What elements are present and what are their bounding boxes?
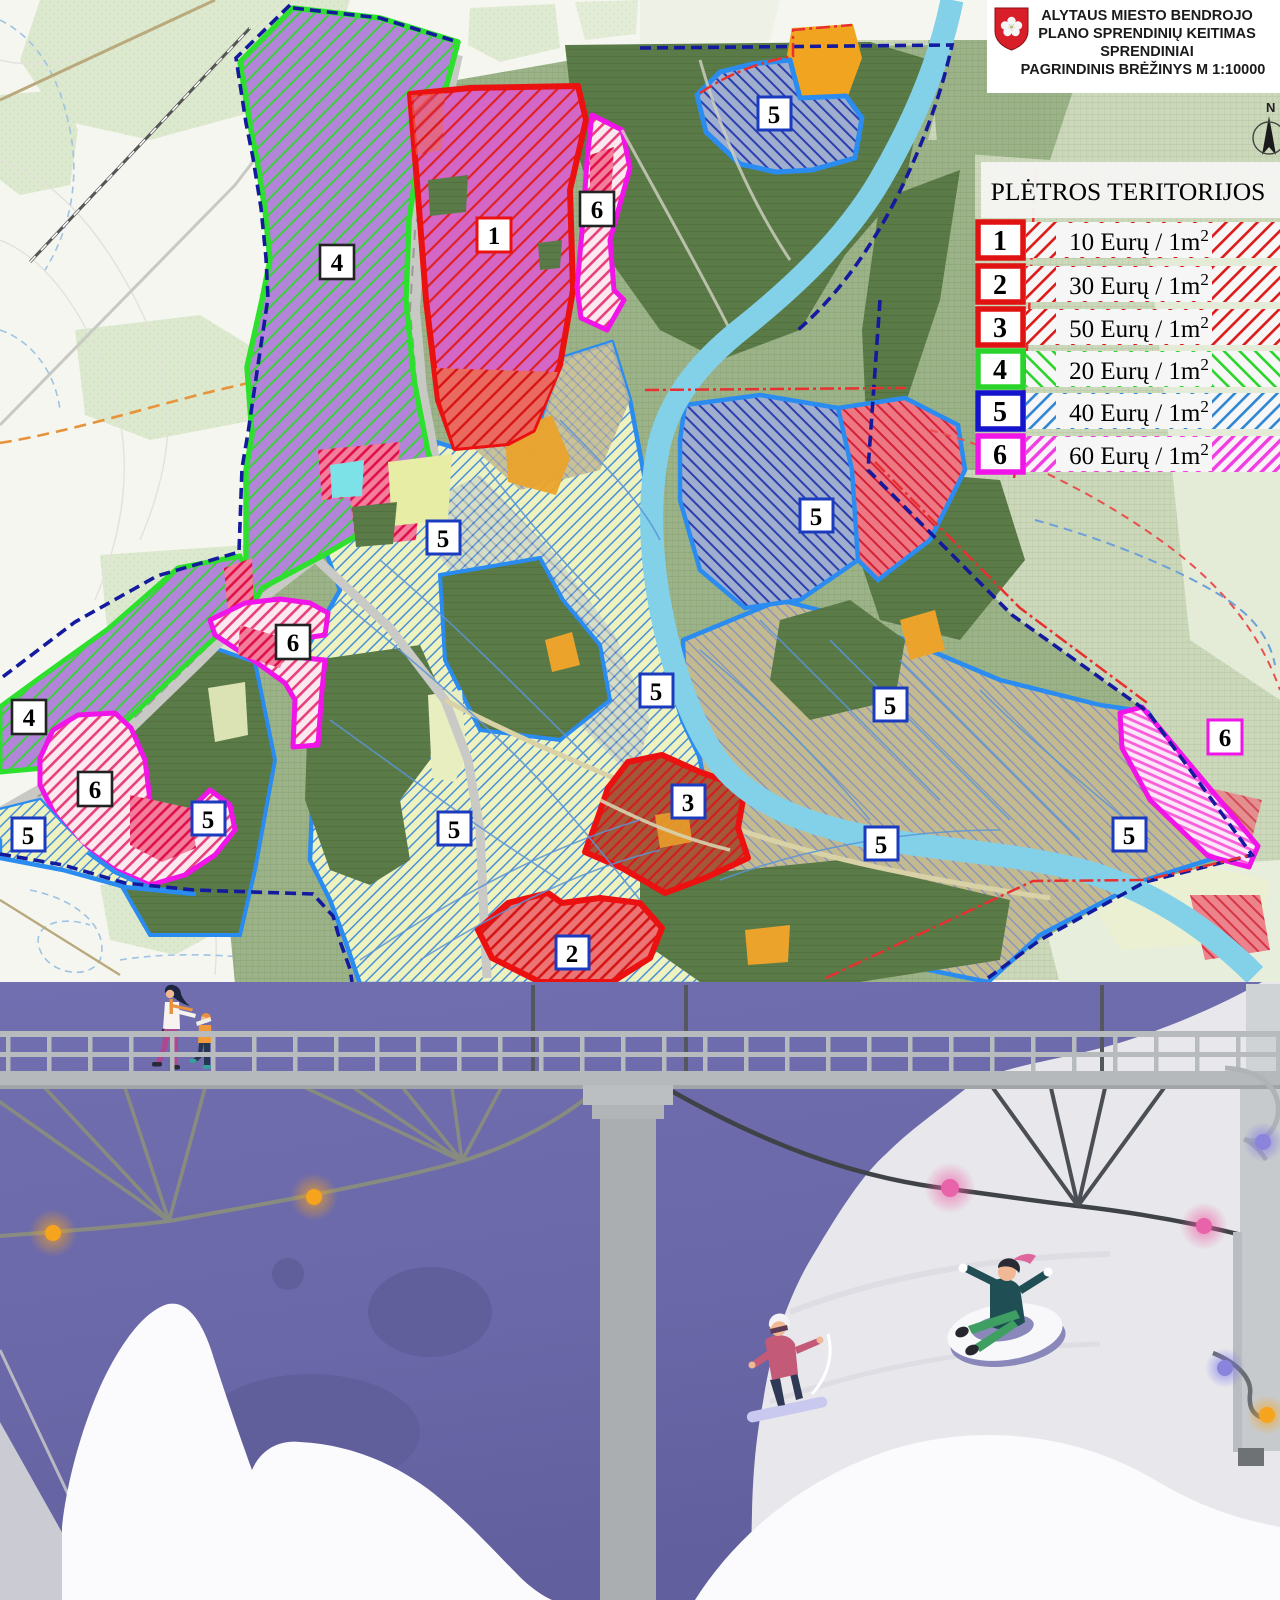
svg-text:10 Eurų / 1m2: 10 Eurų / 1m2 bbox=[1069, 226, 1209, 256]
svg-text:1: 1 bbox=[488, 223, 501, 250]
svg-text:PLANO SPRENDINIŲ KEITIMAS: PLANO SPRENDINIŲ KEITIMAS bbox=[1038, 26, 1256, 42]
svg-text:6: 6 bbox=[287, 630, 300, 657]
svg-text:5: 5 bbox=[448, 817, 461, 844]
svg-text:5: 5 bbox=[22, 823, 35, 850]
svg-text:N: N bbox=[1266, 100, 1275, 115]
svg-text:20 Eurų / 1m2: 20 Eurų / 1m2 bbox=[1069, 355, 1209, 385]
svg-text:6: 6 bbox=[993, 440, 1007, 471]
svg-text:5: 5 bbox=[650, 679, 663, 706]
svg-text:4: 4 bbox=[993, 355, 1007, 386]
svg-text:40 Eurų / 1m2: 40 Eurų / 1m2 bbox=[1069, 397, 1209, 427]
svg-text:6: 6 bbox=[591, 197, 604, 224]
svg-text:6: 6 bbox=[89, 777, 102, 804]
svg-text:60 Eurų / 1m2: 60 Eurų / 1m2 bbox=[1069, 440, 1209, 470]
svg-text:2: 2 bbox=[993, 270, 1007, 301]
svg-text:1: 1 bbox=[993, 226, 1007, 257]
svg-text:6: 6 bbox=[1219, 725, 1232, 752]
svg-text:5: 5 bbox=[768, 102, 781, 129]
svg-text:5: 5 bbox=[884, 693, 897, 720]
svg-text:2: 2 bbox=[566, 941, 579, 968]
svg-text:5: 5 bbox=[810, 504, 823, 531]
svg-text:5: 5 bbox=[437, 526, 450, 553]
svg-text:4: 4 bbox=[23, 705, 36, 732]
svg-text:5: 5 bbox=[875, 832, 888, 859]
svg-text:3: 3 bbox=[682, 790, 695, 817]
svg-text:SPRENDINIAI: SPRENDINIAI bbox=[1100, 44, 1193, 60]
svg-text:PLĖTROS TERITORIJOS: PLĖTROS TERITORIJOS bbox=[991, 177, 1266, 206]
svg-text:4: 4 bbox=[331, 250, 344, 277]
svg-text:5: 5 bbox=[1123, 823, 1136, 850]
svg-text:30 Eurų / 1m2: 30 Eurų / 1m2 bbox=[1069, 270, 1209, 300]
svg-text:5: 5 bbox=[993, 397, 1007, 428]
svg-text:50 Eurų / 1m2: 50 Eurų / 1m2 bbox=[1069, 313, 1209, 343]
svg-text:PAGRINDINIS BRĖŽINYS M 1:1000: PAGRINDINIS BRĖŽINYS M 1:10000 bbox=[1021, 60, 1266, 78]
svg-text:5: 5 bbox=[202, 807, 215, 834]
svg-text:3: 3 bbox=[993, 313, 1007, 344]
svg-text:ALYTAUS MIESTO BENDROJO: ALYTAUS MIESTO BENDROJO bbox=[1041, 8, 1253, 24]
